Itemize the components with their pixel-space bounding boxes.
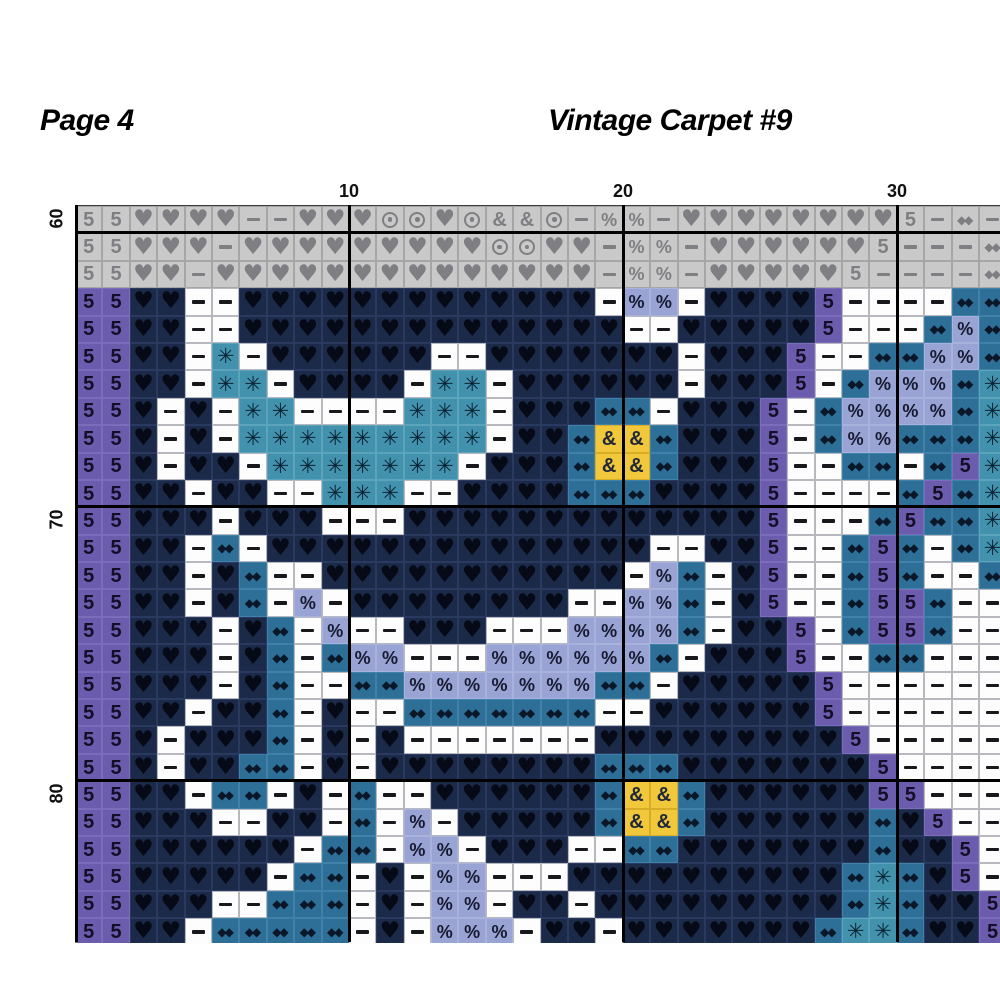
heart-symbol: ♥ — [161, 646, 182, 669]
column-axis-label-20: 20 — [593, 181, 653, 202]
pattern-cell — [952, 562, 979, 589]
double-diamond-symbol: ◆◆ — [957, 433, 971, 445]
heart-symbol: ♥ — [161, 509, 182, 532]
pattern-cell: ◆◆ — [568, 699, 595, 726]
heart-symbol: ♥ — [736, 236, 757, 259]
pattern-cell: ♥ — [267, 288, 294, 315]
dash-symbol — [657, 410, 670, 414]
double-diamond-symbol: ◆◆ — [628, 488, 642, 500]
asterisk-symbol: ✳ — [299, 456, 317, 477]
pattern-cell: ♥ — [157, 507, 184, 534]
pattern-cell: & — [513, 206, 540, 233]
heart-symbol: ♥ — [325, 756, 346, 779]
circled-dot-center — [470, 217, 475, 222]
heart-symbol: ♥ — [434, 263, 455, 286]
asterisk-symbol: ✳ — [874, 921, 892, 942]
double-diamond-symbol: ◆◆ — [272, 679, 286, 691]
pattern-cell: % — [486, 672, 513, 699]
pattern-cell: ◆◆ — [568, 480, 595, 507]
pattern-cell: % — [458, 891, 485, 918]
pattern-cell: ♥ — [322, 343, 349, 370]
pattern-cell: ♥ — [705, 726, 732, 753]
double-diamond-symbol: ◆◆ — [683, 570, 697, 582]
heart-symbol: ♥ — [188, 400, 209, 423]
pattern-cell: 5 — [869, 233, 896, 260]
heart-symbol: ♥ — [489, 455, 510, 478]
pattern-cell: ✳ — [979, 535, 1000, 562]
heart-symbol: ♥ — [763, 646, 784, 669]
pattern-cell: & — [650, 809, 677, 836]
pattern-cell: 5 — [952, 863, 979, 890]
pattern-cell: % — [294, 589, 321, 616]
heart-symbol: ♥ — [161, 373, 182, 396]
pattern-cell: ♥ — [267, 809, 294, 836]
pattern-cell — [541, 206, 568, 233]
pattern-cell — [815, 370, 842, 397]
percent-symbol: % — [574, 676, 590, 694]
pattern-cell: ♥ — [185, 644, 212, 671]
pattern-cell: ♥ — [431, 589, 458, 616]
count-5-symbol: 5 — [83, 922, 94, 942]
pattern-cell: ◆◆ — [376, 672, 403, 699]
dash-symbol — [493, 875, 506, 879]
heart-symbol: ♥ — [654, 701, 675, 724]
pattern-cell: ♥ — [349, 370, 376, 397]
pattern-cell: ♥ — [705, 535, 732, 562]
count-5-symbol: 5 — [83, 621, 94, 641]
dash-symbol — [931, 547, 944, 551]
count-5-symbol: 5 — [823, 319, 834, 339]
pattern-cell: ♥ — [486, 288, 513, 315]
heart-symbol: ♥ — [325, 208, 346, 231]
heart-symbol: ♥ — [681, 920, 702, 943]
heart-symbol: ♥ — [763, 236, 784, 259]
count-5-symbol: 5 — [111, 730, 122, 750]
heart-symbol: ♥ — [133, 619, 154, 642]
pattern-cell: % — [623, 617, 650, 644]
heart-symbol: ♥ — [571, 263, 592, 286]
pattern-cell: ♥ — [541, 261, 568, 288]
heart-symbol: ♥ — [544, 236, 565, 259]
pattern-cell: ◆◆ — [294, 918, 321, 943]
pattern-cell: ♥ — [595, 891, 622, 918]
pattern-cell — [924, 261, 951, 288]
heart-symbol: ♥ — [133, 290, 154, 313]
dash-symbol — [904, 738, 917, 742]
pattern-cell: ◆◆ — [979, 343, 1000, 370]
count-5-symbol: 5 — [987, 894, 998, 914]
pattern-cell: ♥ — [157, 781, 184, 808]
heart-symbol: ♥ — [736, 592, 757, 615]
pattern-cell: ♥ — [815, 726, 842, 753]
count-5-symbol: 5 — [83, 675, 94, 695]
heart-symbol: ♥ — [298, 811, 319, 834]
pattern-cell: ♥ — [486, 836, 513, 863]
pattern-cell: ♥ — [595, 507, 622, 534]
percent-symbol: % — [409, 841, 425, 859]
pattern-cell: ♥ — [130, 233, 157, 260]
double-diamond-symbol: ◆◆ — [875, 652, 889, 664]
dash-symbol — [164, 437, 177, 441]
pattern-cell: ♥ — [732, 425, 759, 452]
heart-symbol: ♥ — [133, 674, 154, 697]
dash-symbol — [794, 410, 807, 414]
heart-symbol: ♥ — [544, 920, 565, 943]
pattern-cell: ✳ — [404, 425, 431, 452]
pattern-cell: ✳ — [458, 398, 485, 425]
asterisk-symbol: ✳ — [381, 483, 399, 504]
pattern-cell: ♥ — [787, 726, 814, 753]
circled-dot-symbol — [464, 212, 480, 228]
pattern-cell: ◆◆ — [267, 699, 294, 726]
pattern-cell — [185, 535, 212, 562]
pattern-cell: ♥ — [431, 288, 458, 315]
count-5-symbol: 5 — [83, 319, 94, 339]
asterisk-symbol: ✳ — [436, 456, 454, 477]
pattern-cell — [979, 617, 1000, 644]
pattern-cell — [924, 644, 951, 671]
heart-symbol: ♥ — [161, 482, 182, 505]
heart-symbol: ♥ — [599, 729, 620, 752]
pattern-cell: 5 — [815, 699, 842, 726]
pattern-cell: ♥ — [130, 480, 157, 507]
pattern-cell — [979, 589, 1000, 616]
dash-symbol — [959, 629, 972, 633]
heart-symbol: ♥ — [133, 400, 154, 423]
asterisk-symbol: ✳ — [299, 428, 317, 449]
double-diamond-symbol: ◆◆ — [984, 241, 998, 253]
ampersand-symbol: & — [602, 429, 616, 449]
dash-symbol — [794, 574, 807, 578]
pattern-cell: ♥ — [322, 754, 349, 781]
heart-symbol: ♥ — [681, 318, 702, 341]
dash-symbol — [685, 300, 698, 304]
pattern-cell: ♥ — [212, 754, 239, 781]
pattern-cell: ♥ — [513, 453, 540, 480]
pattern-cell — [897, 726, 924, 753]
asterisk-symbol: ✳ — [984, 483, 1000, 504]
heart-symbol: ♥ — [215, 263, 236, 286]
heart-symbol: ♥ — [133, 756, 154, 779]
dash-symbol — [986, 821, 999, 825]
pattern-cell — [595, 918, 622, 943]
pattern-cell: ♥ — [130, 699, 157, 726]
pattern-cell — [869, 480, 896, 507]
heart-symbol: ♥ — [900, 838, 921, 861]
pattern-cell — [458, 836, 485, 863]
double-diamond-symbol: ◆◆ — [601, 789, 615, 801]
pattern-cell: ◆◆ — [897, 562, 924, 589]
pattern-cell — [513, 918, 540, 943]
pattern-cell: ♥ — [513, 891, 540, 918]
pattern-cell: ♥ — [650, 726, 677, 753]
pattern-cell: ♥ — [732, 453, 759, 480]
pattern-cell: ✳ — [239, 370, 266, 397]
pattern-cell: ♥ — [842, 754, 869, 781]
pattern-cell: ♥ — [157, 644, 184, 671]
heart-symbol: ♥ — [708, 893, 729, 916]
heart-symbol: ♥ — [599, 318, 620, 341]
heart-symbol: ♥ — [544, 427, 565, 450]
asterisk-symbol: ✳ — [244, 428, 262, 449]
pattern-cell: ✳ — [267, 453, 294, 480]
pattern-cell: ♥ — [294, 206, 321, 233]
dash-symbol — [849, 300, 862, 304]
pattern-cell: ✳ — [376, 453, 403, 480]
pattern-cell — [513, 233, 540, 260]
double-diamond-symbol: ◆◆ — [272, 898, 286, 910]
double-diamond-symbol: ◆◆ — [930, 515, 944, 527]
pattern-cell: ♥ — [732, 836, 759, 863]
heart-symbol: ♥ — [818, 838, 839, 861]
asterisk-symbol: ✳ — [272, 428, 290, 449]
pattern-cell: ◆◆ — [924, 507, 951, 534]
percent-symbol: % — [574, 649, 590, 667]
dash-symbol — [356, 410, 369, 414]
pattern-cell: ♥ — [322, 316, 349, 343]
pattern-cell: ◆◆ — [897, 644, 924, 671]
dash-symbol — [411, 930, 424, 934]
pattern-cell: ♥ — [157, 891, 184, 918]
pattern-cell — [185, 562, 212, 589]
count-5-symbol: 5 — [823, 703, 834, 723]
pattern-cell: ♥ — [732, 699, 759, 726]
heart-symbol: ♥ — [270, 236, 291, 259]
pattern-cell — [815, 453, 842, 480]
pattern-cell: ♥ — [513, 535, 540, 562]
pattern-cell: ♥ — [732, 562, 759, 589]
pattern-cell: % — [404, 809, 431, 836]
pattern-cell: ◆◆ — [513, 699, 540, 726]
pattern-cell: ♥ — [212, 562, 239, 589]
dash-symbol — [986, 793, 999, 797]
dash-symbol — [219, 684, 232, 688]
dash-symbol — [986, 601, 999, 605]
pattern-cell: ♥ — [705, 891, 732, 918]
pattern-cell: ◆◆ — [349, 836, 376, 863]
pattern-cell: ♥ — [760, 370, 787, 397]
pattern-cell: ✳ — [979, 453, 1000, 480]
heart-symbol: ♥ — [736, 811, 757, 834]
pattern-cell: % — [404, 672, 431, 699]
pattern-cell — [185, 480, 212, 507]
percent-symbol: % — [492, 923, 508, 941]
heart-symbol: ♥ — [791, 290, 812, 313]
pattern-cell: ♥ — [732, 809, 759, 836]
heart-symbol: ♥ — [654, 373, 675, 396]
heart-symbol: ♥ — [188, 756, 209, 779]
heart-symbol: ♥ — [791, 811, 812, 834]
dash-symbol — [904, 300, 917, 304]
double-diamond-symbol: ◆◆ — [984, 570, 998, 582]
heart-symbol: ♥ — [161, 263, 182, 286]
heart-symbol: ♥ — [544, 756, 565, 779]
heart-symbol: ♥ — [489, 783, 510, 806]
pattern-cell — [185, 370, 212, 397]
dash-symbol — [301, 738, 314, 742]
asterisk-symbol: ✳ — [436, 401, 454, 422]
dash-symbol — [959, 684, 972, 688]
pattern-cell: ♥ — [431, 754, 458, 781]
pattern-cell: ◆◆ — [595, 809, 622, 836]
pattern-cell: ♥ — [924, 863, 951, 890]
dash-symbol — [356, 766, 369, 770]
pattern-cell — [404, 370, 431, 397]
pattern-cell — [404, 863, 431, 890]
pattern-cell — [294, 699, 321, 726]
pattern-cell: ♥ — [185, 398, 212, 425]
pattern-cell — [842, 644, 869, 671]
double-diamond-symbol: ◆◆ — [683, 816, 697, 828]
dash-symbol — [192, 328, 205, 332]
pattern-cell: ♥ — [732, 672, 759, 699]
pattern-cell: ♥ — [130, 781, 157, 808]
pattern-cell: % — [623, 233, 650, 260]
dash-symbol — [192, 574, 205, 578]
pattern-cell: ◆◆ — [979, 562, 1000, 589]
pattern-cell — [513, 726, 540, 753]
pattern-cell: ♥ — [787, 261, 814, 288]
pattern-cell — [979, 672, 1000, 699]
pattern-cell: 5 — [75, 233, 102, 260]
pattern-cell — [349, 398, 376, 425]
dash-symbol — [959, 656, 972, 660]
heart-symbol: ♥ — [489, 811, 510, 834]
double-diamond-symbol: ◆◆ — [957, 378, 971, 390]
heart-symbol: ♥ — [708, 674, 729, 697]
row-axis-label-70: 70 — [44, 505, 71, 535]
pattern-cell: ♥ — [568, 288, 595, 315]
heart-symbol: ♥ — [736, 373, 757, 396]
pattern-cell: % — [842, 425, 869, 452]
pattern-cell: ♥ — [678, 836, 705, 863]
count-5-symbol: 5 — [83, 867, 94, 887]
dash-symbol — [959, 245, 972, 249]
double-diamond-symbol: ◆◆ — [902, 898, 916, 910]
pattern-cell: ♥ — [732, 206, 759, 233]
pattern-cell: % — [595, 617, 622, 644]
pattern-cell — [404, 206, 431, 233]
pattern-cell: ♥ — [239, 672, 266, 699]
dash-symbol — [603, 930, 616, 934]
pattern-cell: ♥ — [678, 863, 705, 890]
dash-symbol — [192, 492, 205, 496]
heart-symbol: ♥ — [818, 783, 839, 806]
percent-symbol: % — [464, 923, 480, 941]
heart-symbol: ♥ — [708, 537, 729, 560]
pattern-cell — [897, 233, 924, 260]
dash-symbol — [712, 629, 725, 633]
pattern-cell: ♥ — [294, 233, 321, 260]
pattern-cell: ♥ — [404, 288, 431, 315]
percent-symbol: % — [957, 320, 973, 338]
heart-symbol: ♥ — [380, 866, 401, 889]
pattern-cell: % — [650, 562, 677, 589]
pattern-cell — [815, 589, 842, 616]
pattern-cell: 5 — [760, 453, 787, 480]
dash-symbol — [274, 574, 287, 578]
heart-symbol: ♥ — [763, 838, 784, 861]
pattern-cell: ♥ — [705, 781, 732, 808]
row-axis-label-80: 80 — [44, 779, 71, 809]
pattern-cell: ♥ — [458, 480, 485, 507]
asterisk-symbol: ✳ — [984, 428, 1000, 449]
pattern-cell: ♥ — [130, 535, 157, 562]
pattern-cell: ♥ — [678, 316, 705, 343]
pattern-cell: % — [650, 261, 677, 288]
pattern-cell — [952, 672, 979, 699]
pattern-cell: ◆◆ — [897, 891, 924, 918]
dash-symbol — [466, 848, 479, 852]
asterisk-symbol: ✳ — [984, 374, 1000, 395]
pattern-cell: & — [595, 425, 622, 452]
pattern-cell: ◆◆ — [924, 425, 951, 452]
heart-symbol: ♥ — [544, 290, 565, 313]
pattern-cell: & — [623, 425, 650, 452]
pattern-cell — [924, 781, 951, 808]
pattern-cell — [650, 398, 677, 425]
pattern-cell: 5 — [760, 480, 787, 507]
heart-symbol: ♥ — [462, 619, 483, 642]
dash-symbol — [822, 656, 835, 660]
dash-symbol — [931, 684, 944, 688]
pattern-cell: ♥ — [513, 836, 540, 863]
heart-symbol: ♥ — [462, 290, 483, 313]
pattern-cell: ◆◆ — [924, 589, 951, 616]
count-5-symbol: 5 — [83, 484, 94, 504]
heart-symbol: ♥ — [818, 756, 839, 779]
pattern-cell: ♥ — [595, 726, 622, 753]
pattern-cell: ♥ — [486, 781, 513, 808]
dash-symbol — [356, 903, 369, 907]
pattern-cell: ♥ — [486, 809, 513, 836]
pattern-cell: ♥ — [541, 836, 568, 863]
heart-symbol: ♥ — [708, 920, 729, 943]
dash-symbol — [822, 601, 835, 605]
heart-symbol: ♥ — [352, 345, 373, 368]
double-diamond-symbol: ◆◆ — [930, 460, 944, 472]
double-diamond-symbol: ◆◆ — [930, 597, 944, 609]
pattern-cell — [842, 507, 869, 534]
heart-symbol: ♥ — [161, 811, 182, 834]
pattern-cell — [267, 781, 294, 808]
heart-symbol: ♥ — [517, 345, 538, 368]
pattern-cell: ♥ — [541, 288, 568, 315]
pattern-cell: % — [349, 644, 376, 671]
heart-symbol: ♥ — [298, 290, 319, 313]
pattern-cell: ♥ — [760, 699, 787, 726]
pattern-cell: % — [623, 261, 650, 288]
percent-symbol: % — [656, 293, 672, 311]
pattern-cell — [376, 617, 403, 644]
pattern-cell: ◆◆ — [650, 425, 677, 452]
count-5-symbol: 5 — [83, 264, 94, 284]
percent-symbol: % — [464, 895, 480, 913]
pattern-cell — [595, 589, 622, 616]
heart-symbol: ♥ — [681, 482, 702, 505]
pattern-cell: % — [513, 644, 540, 671]
double-diamond-symbol: ◆◆ — [217, 789, 231, 801]
dash-symbol — [411, 903, 424, 907]
dash-symbol — [877, 273, 890, 277]
pattern-cell: ♥ — [595, 370, 622, 397]
heart-symbol: ♥ — [517, 290, 538, 313]
pattern-cell: ♥ — [732, 370, 759, 397]
dash-symbol — [356, 519, 369, 523]
pattern-cell: ♥ — [705, 672, 732, 699]
heart-symbol: ♥ — [927, 920, 948, 943]
pattern-cell: ◆◆ — [650, 644, 677, 671]
